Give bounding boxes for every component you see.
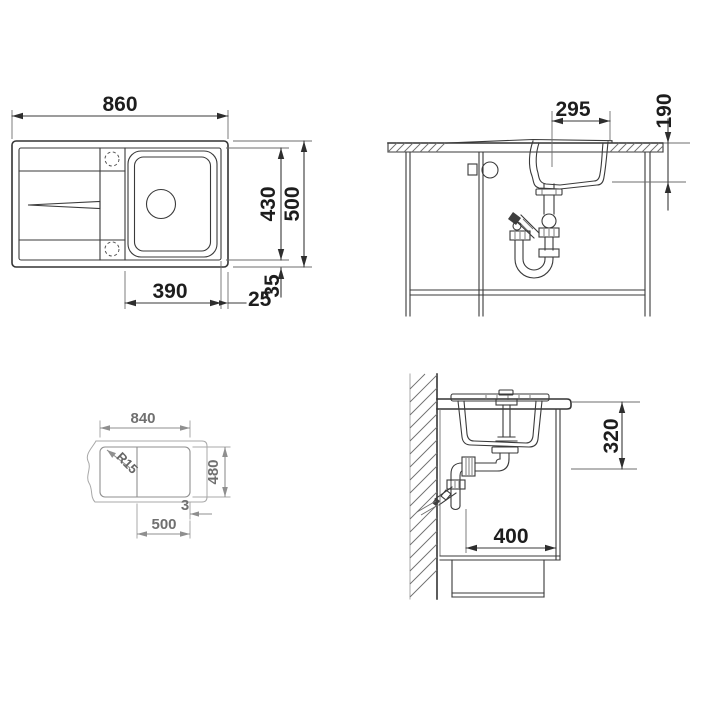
dim-bowl-width: 390 bbox=[125, 261, 228, 309]
trap-ball-joint bbox=[542, 214, 556, 228]
dim-overall-width: 860 bbox=[12, 93, 228, 139]
dim-label-3: 3 bbox=[181, 497, 189, 514]
countertop-hatch bbox=[388, 143, 663, 152]
dim-label-320: 320 bbox=[600, 418, 623, 453]
cabinet-hinge-mark-square bbox=[468, 164, 477, 175]
dim-label-500-cutout: 500 bbox=[151, 516, 176, 533]
trap-u-bend bbox=[510, 222, 553, 278]
dim-label-190: 190 bbox=[653, 93, 676, 128]
technical-drawing-canvas: 860 430 500 35 bbox=[0, 0, 720, 720]
plan-view: 860 430 500 35 bbox=[12, 93, 312, 311]
dim-label-390: 390 bbox=[152, 280, 187, 303]
dim-cutout-depth: 480 bbox=[193, 447, 230, 497]
side-drain-trap bbox=[417, 447, 518, 515]
worktop-piece bbox=[87, 441, 207, 502]
dim-label-295: 295 bbox=[555, 98, 590, 121]
dim-under-top-clearance: 320 bbox=[571, 402, 640, 469]
bowl-inner-wall bbox=[536, 143, 603, 185]
dim-lip: 3 bbox=[181, 497, 212, 519]
dim-label-500: 500 bbox=[281, 186, 304, 221]
front-cabinet bbox=[406, 152, 650, 316]
cutout-view: R15 840 480 3 bbox=[87, 410, 230, 538]
dim-label-860: 860 bbox=[102, 93, 137, 116]
drawing-page: 860 430 500 35 bbox=[0, 0, 720, 720]
drain-circle bbox=[147, 190, 176, 219]
side-wall bbox=[410, 374, 437, 599]
dim-label-840: 840 bbox=[130, 410, 155, 427]
dim-basin-length: 430 bbox=[226, 148, 289, 260]
front-view: 295 190 bbox=[388, 93, 690, 316]
waste-fitting bbox=[496, 399, 517, 441]
dim-label-480: 480 bbox=[205, 459, 222, 484]
side-view: 320 400 bbox=[410, 374, 640, 599]
plan-drainboard bbox=[19, 148, 125, 260]
dim-bowl-inner-width: 295 bbox=[552, 98, 610, 167]
dim-label-25: 25 bbox=[248, 288, 272, 311]
dim-label-430: 430 bbox=[257, 186, 280, 221]
dim-label-400: 400 bbox=[493, 525, 528, 548]
dim-right-margin: 25 bbox=[219, 288, 272, 311]
cabinet-hinge-mark-circle bbox=[482, 162, 498, 178]
wall-hatch bbox=[410, 374, 437, 597]
drainboard-groove bbox=[28, 202, 100, 209]
front-drain-trap bbox=[508, 189, 562, 278]
cabinet-plinth bbox=[452, 560, 544, 597]
tap-hole-bottom bbox=[105, 242, 119, 256]
front-countertop bbox=[388, 143, 663, 152]
dim-drain-wall-offset: 400 bbox=[466, 509, 556, 553]
tap-hole-top bbox=[105, 152, 119, 166]
dim-cutout-width: 840 bbox=[100, 410, 190, 437]
plan-bowl bbox=[128, 151, 217, 257]
dim-corner-radius: R15 bbox=[107, 449, 141, 476]
